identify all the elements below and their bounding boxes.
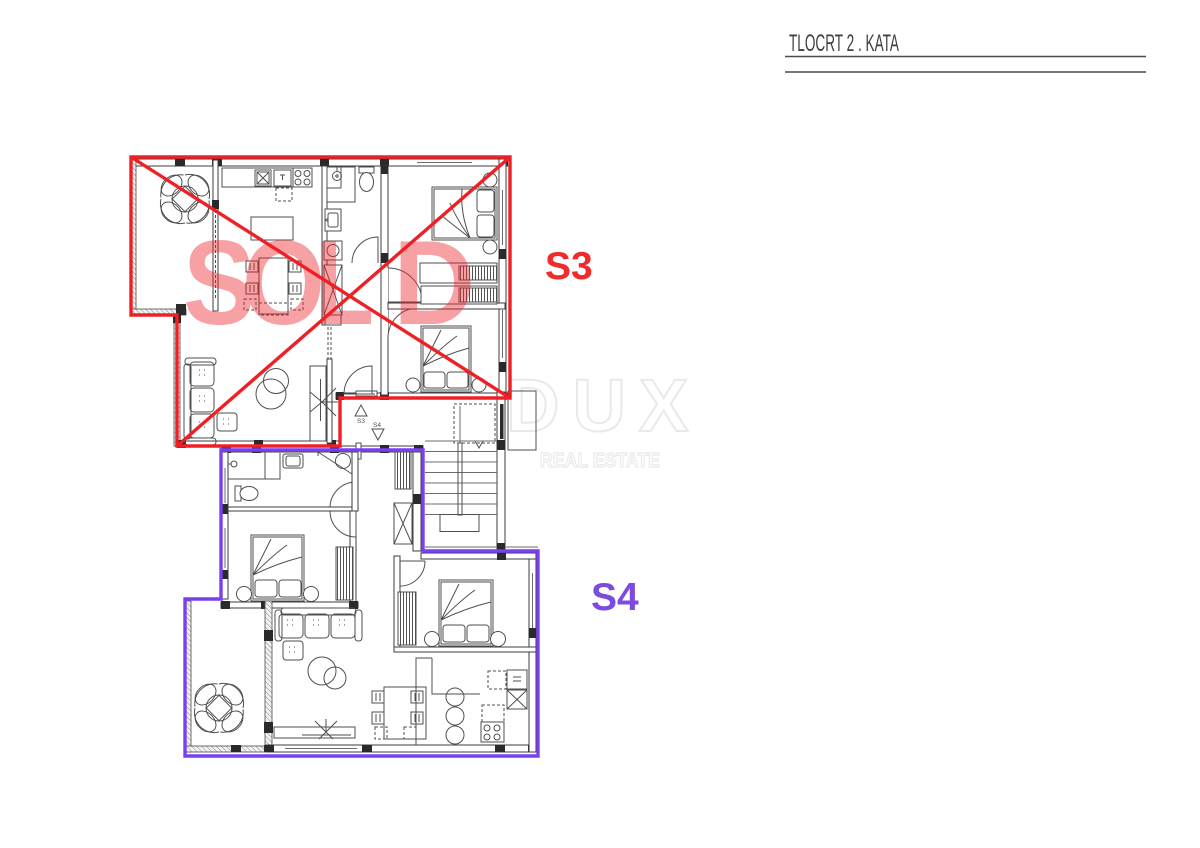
svg-text:S3: S3 — [545, 245, 593, 288]
svg-text:S3: S3 — [357, 418, 365, 425]
svg-text:S4: S4 — [373, 422, 381, 429]
svg-text:DUX: DUX — [506, 364, 701, 447]
svg-text:S4: S4 — [591, 576, 639, 619]
svg-text:TLOCRT 2 . KATA: TLOCRT 2 . KATA — [789, 30, 899, 57]
svg-text:REAL ESTATE: REAL ESTATE — [540, 450, 660, 472]
